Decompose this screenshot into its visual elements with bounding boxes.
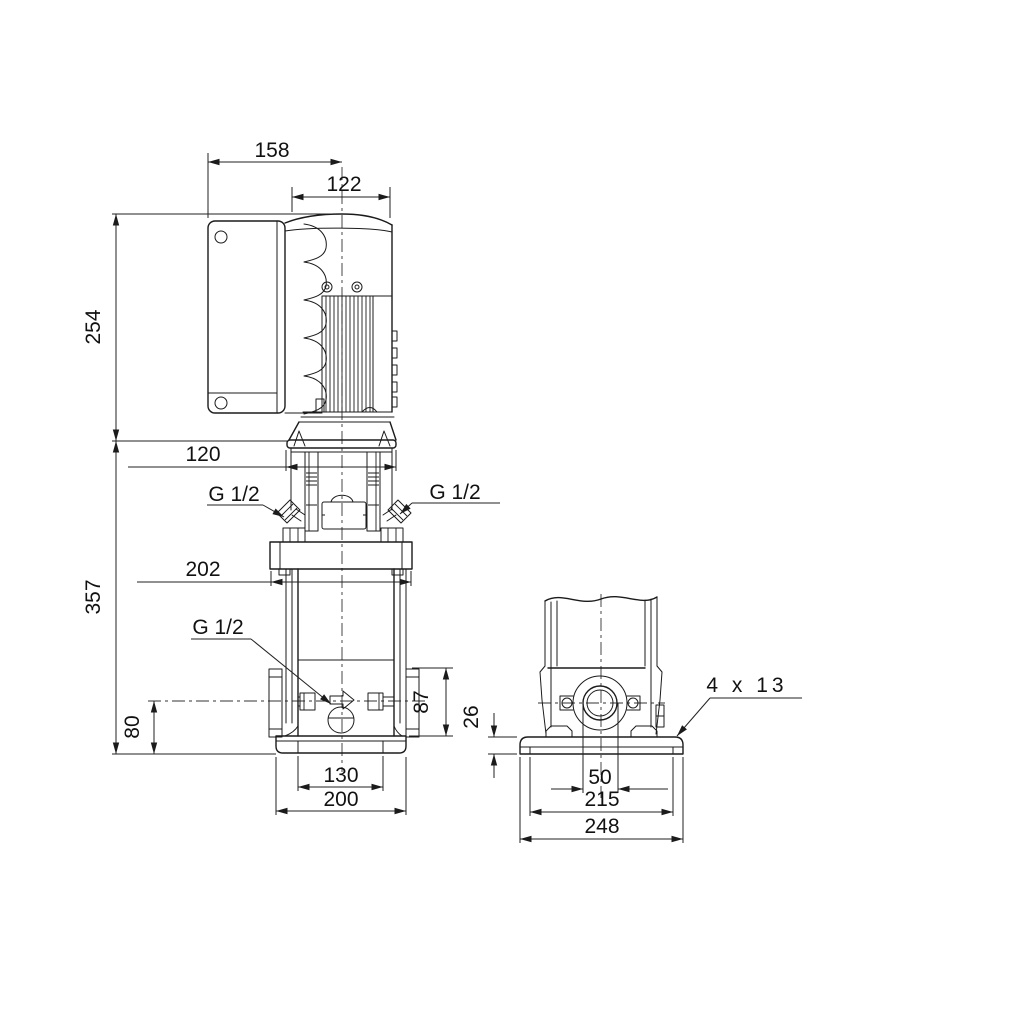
dim-label-200: 200 <box>323 788 358 811</box>
dim-label-120: 120 <box>185 443 220 466</box>
dim-label-80: 80 <box>121 715 144 738</box>
pump-base <box>276 736 406 753</box>
plug-boss-left <box>298 693 315 710</box>
dimension-202: 202 <box>137 558 411 586</box>
dim-label-248: 248 <box>584 815 619 838</box>
coupling-guard <box>305 452 380 531</box>
dim-label-254: 254 <box>82 309 105 344</box>
control-box <box>208 221 285 413</box>
dimension-26: 26 <box>460 705 517 778</box>
dim-label-87: 87 <box>410 690 433 713</box>
screw-hole-icon <box>215 231 227 243</box>
side-base-plate <box>520 737 683 754</box>
label-gauge-port-right: G 1/2 <box>429 481 480 504</box>
head-flange <box>270 542 412 569</box>
callout-mounting-holes: 4 x 13 <box>677 674 802 736</box>
side-feet <box>546 726 657 737</box>
pump-body <box>269 569 419 737</box>
dimension-254: 254 <box>82 214 336 441</box>
dim-label-122: 122 <box>326 173 361 196</box>
screw-hole-icon <box>215 397 227 409</box>
label-mounting-holes: 4 x 13 <box>706 674 787 697</box>
hex-nut-left <box>283 528 305 542</box>
motor-stool <box>287 412 396 452</box>
callout-gauge-port-left: G 1/2 <box>207 483 284 517</box>
dim-label-130: 130 <box>323 764 358 787</box>
drain-hole-cover <box>362 408 377 413</box>
dimension-122: 122 <box>292 173 390 218</box>
side-column <box>540 597 662 734</box>
motor <box>285 214 397 452</box>
hex-nut-right <box>381 528 403 542</box>
dimension-87: 87 <box>409 668 453 736</box>
dim-label-215: 215 <box>584 788 619 811</box>
screw-icon <box>322 282 332 292</box>
gauge-plug-right <box>383 500 411 523</box>
dimension-80: 80 <box>121 701 154 754</box>
dim-label-50: 50 <box>588 766 611 789</box>
port-flange-left <box>269 669 282 737</box>
dim-label-202: 202 <box>185 558 220 581</box>
heatsink-scallop-edge <box>304 224 326 414</box>
dim-label-26: 26 <box>460 705 483 728</box>
label-drain-port: G 1/2 <box>192 616 243 639</box>
dimension-158: 158 <box>208 139 342 218</box>
motor-fins <box>322 296 392 412</box>
dimension-120: 120 <box>128 443 396 471</box>
plug-boss-right <box>368 693 394 710</box>
nameplate <box>322 502 366 529</box>
screw-icon <box>352 282 362 292</box>
callout-gauge-port-right: G 1/2 <box>400 481 500 514</box>
label-gauge-port-left: G 1/2 <box>208 483 259 506</box>
dim-label-158: 158 <box>254 139 289 162</box>
dim-label-357: 357 <box>82 579 105 614</box>
drain-plug <box>328 707 354 733</box>
side-view: 26 4 x 13 50 215 248 <box>460 594 802 843</box>
dimension-130: 130 <box>298 756 383 791</box>
motor-side-tabs <box>392 331 397 407</box>
front-view: 158 122 254 357 120 202 <box>82 139 500 815</box>
pump-head <box>270 452 412 575</box>
pump-dimensional-drawing: 158 122 254 357 120 202 <box>0 0 1024 1024</box>
